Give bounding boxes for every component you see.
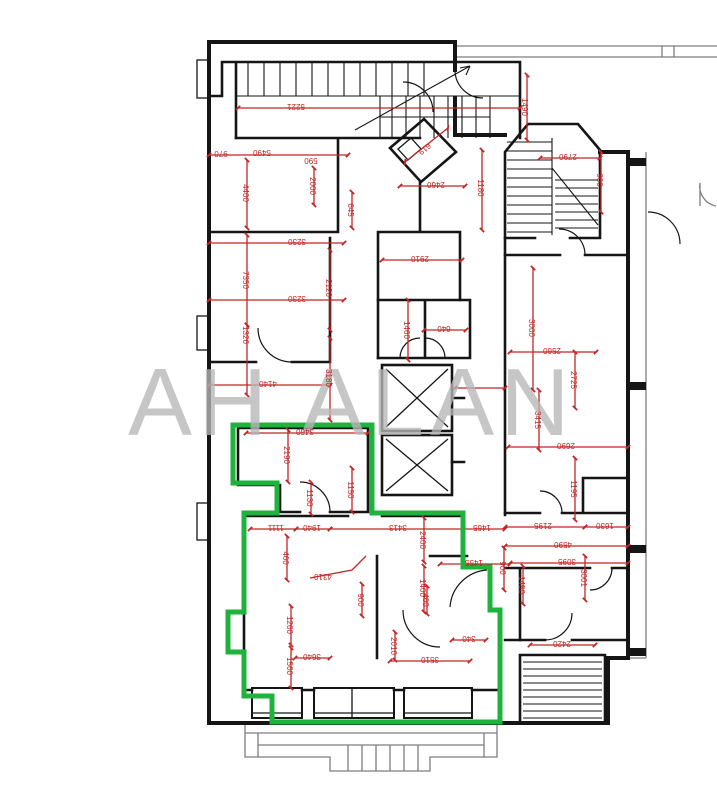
dimension-label: 1460 xyxy=(402,321,411,339)
dimension-label: 1111 xyxy=(267,523,284,532)
dimension-label: 2725 xyxy=(569,371,578,389)
dimension-label: 3000 xyxy=(527,319,536,337)
dimension-label: 2790 xyxy=(559,152,577,161)
dimension-label: 1326 xyxy=(241,326,250,344)
dimension-label: 2190 xyxy=(282,446,291,464)
dimension-label: 1630 xyxy=(596,521,614,530)
dimension-label: 3510 xyxy=(421,655,439,664)
dimension-label: 1150 xyxy=(346,481,355,499)
dimension-label: 900 xyxy=(498,561,507,575)
dimension-label: 3230 xyxy=(288,237,306,246)
dimension-label: 3460 xyxy=(296,427,314,436)
dimension-label: 1560 xyxy=(285,657,294,675)
dimension-label: 2420 xyxy=(553,639,571,648)
dimension-label: 4590 xyxy=(554,540,572,549)
dimension-label: 5490 xyxy=(253,148,271,157)
floorplan-drawing: AH ALAN 52211490970549059024606191180960… xyxy=(0,0,717,800)
dimension-label: 1455 xyxy=(465,558,483,567)
central-staircase xyxy=(505,124,600,238)
top-staircase xyxy=(209,62,520,138)
dimension-label: 460 xyxy=(281,551,290,565)
dimension-label: 2910 xyxy=(411,254,429,263)
dimension-label: 3413 xyxy=(389,523,407,532)
dimension-label: 3180 xyxy=(324,369,333,387)
floorplan-page: AH ALAN 52211490970549059024606191180960… xyxy=(0,0,717,800)
dimension-label: 900 xyxy=(356,593,365,607)
dimension-label: 3230 xyxy=(288,294,306,303)
dimension-label: 960 xyxy=(595,173,604,187)
dimension-label: 1490 xyxy=(520,98,529,116)
dimension-label: 1195 xyxy=(569,480,578,498)
dimension-label: 2000 xyxy=(308,177,317,195)
dimension-label: 2400 xyxy=(418,531,427,549)
dimension-label: 2560 xyxy=(543,346,561,355)
dimension-label: 1465 xyxy=(473,523,491,532)
dimension-label: 645 xyxy=(346,203,355,217)
dimension-label: 1180 xyxy=(476,179,485,197)
dimension-label: 460 xyxy=(421,593,430,607)
watermark-text: AH ALAN xyxy=(128,349,576,456)
dimension-label: 1940 xyxy=(303,523,321,532)
stair-direction-arrow xyxy=(355,66,470,130)
dimension-label: 1260 xyxy=(285,616,294,634)
dimension-label: 1130 xyxy=(305,489,314,507)
dimension-label: 2690 xyxy=(557,441,575,450)
dimension-label: 3640 xyxy=(303,652,321,661)
dimension-label: 340 xyxy=(462,634,476,643)
dimension-label: 2120 xyxy=(324,279,333,297)
exterior-door-swing xyxy=(700,183,716,206)
dimension-label: 640 xyxy=(437,324,451,333)
dimension-label: 3095 xyxy=(558,557,576,566)
dimension-label: 2195 xyxy=(534,521,552,530)
dimension-label: 4140 xyxy=(259,379,277,388)
dimension-label: 5221 xyxy=(287,102,305,111)
dimension-label: 4310 xyxy=(314,572,332,581)
dimension-label: 3001 xyxy=(579,569,588,587)
highlighted-unit-outline xyxy=(228,425,500,722)
facade-window-blocks xyxy=(628,158,646,656)
dimension-label: 590 xyxy=(304,156,318,165)
bottom-staircase xyxy=(520,655,605,722)
dimension-label: 970 xyxy=(214,149,228,158)
dimension-label: 1450 xyxy=(517,576,526,594)
dimension-label: 4400 xyxy=(241,184,250,202)
dimension-label: 2460 xyxy=(427,180,445,189)
dimension-label: 619 xyxy=(416,141,432,157)
dimension-label: 7350 xyxy=(241,271,250,289)
dimension-label: 3415 xyxy=(533,411,542,429)
dimension-label: 2010 xyxy=(389,637,398,655)
